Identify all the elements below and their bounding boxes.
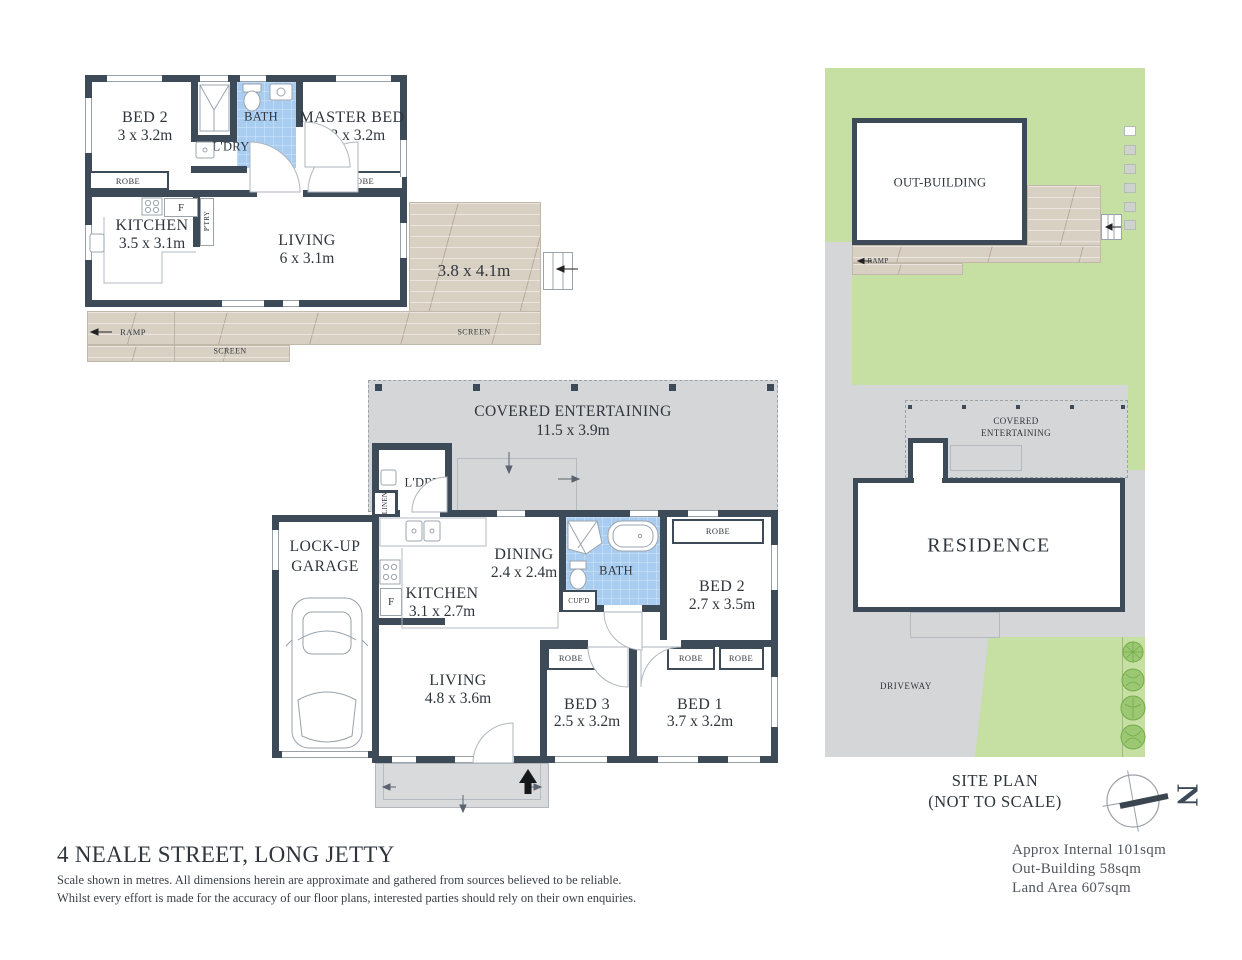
site-grass-bottom bbox=[975, 637, 1145, 757]
deck-divider bbox=[174, 311, 175, 362]
pantry-label: P'TRY bbox=[203, 211, 211, 231]
room-dims-living: 4.8 x 3.6m bbox=[425, 690, 491, 708]
site-grass-right bbox=[1128, 385, 1145, 470]
stepping-stone bbox=[1124, 220, 1136, 230]
fridge-label: F bbox=[178, 202, 184, 214]
window bbox=[658, 756, 698, 763]
wall-segment bbox=[85, 190, 257, 197]
window bbox=[272, 530, 279, 570]
stepping-stone bbox=[1124, 202, 1136, 212]
compass-icon bbox=[1097, 765, 1169, 837]
linen-label: LINEN bbox=[381, 492, 389, 515]
room-label-master: MASTER BED bbox=[300, 109, 405, 127]
window bbox=[283, 300, 299, 307]
window bbox=[688, 510, 718, 517]
room-dims-living: 6 x 3.1m bbox=[280, 250, 335, 268]
post bbox=[767, 384, 774, 391]
site-driveway-label: DRIVEWAY bbox=[880, 681, 932, 691]
covered-label: COVERED ENTERTAINING bbox=[474, 403, 671, 421]
site-step-outline bbox=[950, 445, 1022, 471]
site-ramp-label: RAMP bbox=[867, 257, 888, 265]
window bbox=[630, 510, 658, 517]
room-dims-bed1: 3.7 x 3.2m bbox=[667, 713, 733, 731]
room-label-kitchen: KITCHEN bbox=[115, 217, 188, 235]
disclaimer-line-2: Whilst every effort is made for the accu… bbox=[57, 891, 697, 906]
stepping-stone bbox=[1124, 183, 1136, 193]
window bbox=[484, 756, 514, 763]
stepping-stone bbox=[1124, 164, 1136, 174]
window bbox=[222, 300, 264, 307]
window bbox=[107, 75, 162, 82]
robe-label: ROBE bbox=[729, 653, 753, 663]
deck-dims: 3.8 x 4.1m bbox=[438, 261, 511, 281]
screen-label: SCREEN bbox=[457, 328, 490, 337]
outbuilding-bath-floor bbox=[237, 82, 296, 168]
window bbox=[400, 140, 407, 177]
cupboard-label: CUP'D bbox=[568, 597, 589, 605]
room-label-living: LIVING bbox=[278, 232, 336, 250]
room-label-bed1: BED 1 bbox=[677, 696, 723, 714]
room-label-dining: DINING bbox=[494, 546, 553, 564]
robe-label: ROBE bbox=[679, 653, 703, 663]
site-covered-label-2: ENTERTAINING bbox=[981, 428, 1051, 438]
area-outbuilding: Out-Building 58sqm bbox=[1012, 861, 1141, 878]
stepping-stone bbox=[1124, 145, 1136, 155]
robe-label: ROBE bbox=[706, 526, 730, 536]
post bbox=[473, 384, 480, 391]
window bbox=[392, 756, 416, 763]
deck-steps bbox=[543, 252, 573, 290]
window bbox=[728, 756, 760, 763]
window bbox=[771, 545, 778, 590]
tab-opening bbox=[914, 478, 942, 484]
laundry-label: L'DRY bbox=[404, 476, 441, 491]
area-internal: Approx Internal 101sqm bbox=[1012, 842, 1166, 859]
room-dims-master: 3.3 x 3.2m bbox=[319, 127, 385, 145]
room-label-laundry: L'DRY bbox=[212, 140, 249, 155]
step-outline bbox=[457, 458, 577, 512]
deck-strip-lower bbox=[87, 345, 290, 362]
site-steps bbox=[1101, 214, 1122, 240]
window bbox=[85, 98, 92, 153]
post bbox=[908, 405, 912, 409]
room-dims-bed2: 3 x 3.2m bbox=[118, 127, 173, 145]
room-label-bed2: BED 2 bbox=[699, 578, 745, 596]
property-address: 4 NEALE STREET, LONG JETTY bbox=[57, 842, 395, 868]
post bbox=[375, 384, 382, 391]
site-side-path bbox=[825, 242, 852, 757]
garage-label-2: GARAGE bbox=[291, 558, 359, 576]
window bbox=[455, 756, 477, 763]
screen-label: SCREEN bbox=[213, 347, 246, 356]
site-deck-strip bbox=[852, 245, 1101, 263]
wall-segment bbox=[629, 640, 637, 763]
robe-label: ROBE bbox=[350, 176, 374, 186]
door-gap bbox=[641, 640, 681, 647]
siteplan-caption-2: (NOT TO SCALE) bbox=[928, 792, 1062, 812]
room-label-living: LIVING bbox=[429, 672, 487, 690]
ramp-label: RAMP bbox=[120, 327, 146, 337]
siteplan-caption-1: SITE PLAN bbox=[952, 771, 1039, 791]
robe-label: ROBE bbox=[116, 176, 140, 186]
room-dims-dining: 2.4 x 2.4m bbox=[491, 564, 557, 582]
disclaimer-line-1: Scale shown in metres. All dimensions he… bbox=[57, 873, 697, 888]
robe-label: ROBE bbox=[559, 653, 583, 663]
room-label-kitchen: KITCHEN bbox=[405, 585, 478, 603]
site-residence-label: RESIDENCE bbox=[927, 535, 1051, 558]
stepping-stone bbox=[1124, 126, 1136, 136]
room-dims-bed2: 2.7 x 3.5m bbox=[689, 596, 755, 614]
wall-segment bbox=[230, 75, 237, 140]
window bbox=[85, 225, 92, 260]
garage-door bbox=[282, 751, 368, 758]
area-land: Land Area 607sqm bbox=[1012, 880, 1131, 897]
room-label-bed2: BED 2 bbox=[122, 109, 168, 127]
site-covered-label-1: COVERED bbox=[993, 416, 1038, 426]
wall-segment bbox=[660, 517, 667, 647]
north-label: N bbox=[1171, 784, 1206, 806]
floorplan-sheet: BED 2 3 x 3.2m BATH MASTER BED 3.3 x 3.2… bbox=[0, 0, 1242, 960]
site-residence-tab bbox=[908, 438, 948, 483]
room-dims-bed3: 2.5 x 3.2m bbox=[554, 713, 620, 731]
garden-strip-line bbox=[1122, 637, 1123, 757]
post bbox=[1121, 405, 1125, 409]
room-label-bath: BATH bbox=[599, 564, 633, 579]
site-porch-outline bbox=[910, 612, 1000, 638]
window bbox=[497, 510, 525, 517]
door-gap bbox=[604, 605, 642, 612]
window bbox=[400, 223, 407, 258]
door-gap bbox=[588, 640, 628, 647]
wall-segment bbox=[191, 166, 247, 173]
room-label-bath: BATH bbox=[244, 110, 278, 125]
site-outbuilding-label: OUT-BUILDING bbox=[894, 176, 987, 191]
post bbox=[571, 384, 578, 391]
post bbox=[1016, 405, 1020, 409]
post bbox=[962, 405, 966, 409]
post bbox=[1070, 405, 1074, 409]
fridge-label: F bbox=[388, 596, 394, 608]
laundry-opening bbox=[400, 510, 440, 517]
window bbox=[200, 75, 228, 82]
wall-segment bbox=[191, 75, 198, 140]
room-dims-kitchen: 3.5 x 3.1m bbox=[119, 235, 185, 253]
room-label-bed3: BED 3 bbox=[564, 696, 610, 714]
covered-dims: 11.5 x 3.9m bbox=[536, 422, 609, 440]
window bbox=[240, 75, 266, 82]
window bbox=[771, 677, 778, 727]
wall-segment bbox=[540, 640, 547, 763]
wall-segment bbox=[303, 190, 407, 197]
garage-label-1: LOCK-UP bbox=[290, 538, 361, 556]
porch-outline bbox=[383, 763, 541, 800]
window bbox=[336, 75, 391, 82]
room-dims-kitchen: 3.1 x 2.7m bbox=[409, 603, 475, 621]
post bbox=[669, 384, 676, 391]
window bbox=[555, 756, 607, 763]
